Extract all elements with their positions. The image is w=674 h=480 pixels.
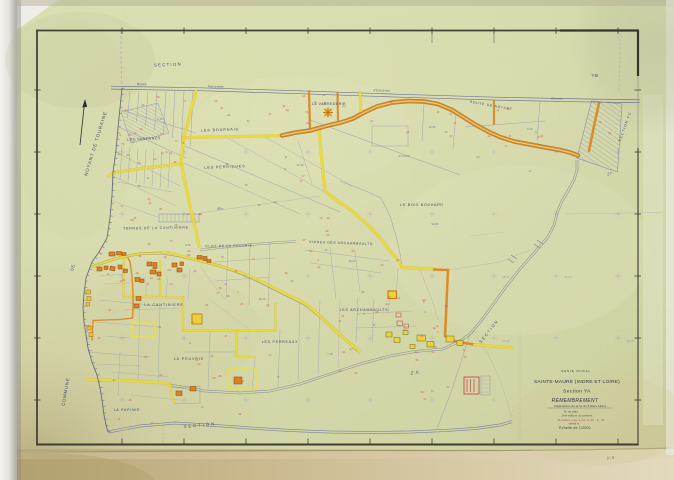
svg-text:16.20: 16.20 (259, 297, 266, 301)
svg-text:52.80: 52.80 (432, 222, 439, 226)
svg-text:N° du plan: N° du plan (564, 409, 578, 413)
svg-text:60: 60 (352, 249, 355, 253)
svg-text:Nationale: Nationale (208, 84, 224, 88)
svg-text:LA PEUVRIE: LA PEUVRIE (174, 357, 205, 361)
svg-text:Echelle de 1/2000: Echelle de 1/2000 (559, 426, 591, 430)
svg-text:25.00: 25.00 (565, 276, 572, 279)
svg-text:1ère édition du présent: 1ère édition du présent (561, 414, 592, 418)
svg-text:Chemin: Chemin (551, 96, 563, 100)
svg-text:LA PAPINIE: LA PAPINIE (114, 408, 141, 412)
svg-text:7.25: 7.25 (327, 352, 333, 356)
svg-text:18.40: 18.40 (349, 259, 356, 263)
svg-text:LES PERREAUX: LES PERREAUX (262, 340, 298, 344)
svg-text:LES ARCHAMBAULTS: LES ARCHAMBAULTS (340, 308, 389, 312)
svg-text:2è édition mise à jour le: 2è édition mise à jour le 30 - 6 - 65 (557, 418, 605, 422)
svg-text:8.35: 8.35 (185, 243, 191, 247)
svg-text:LA CANTINIERE: LA CANTINIERE (144, 303, 183, 307)
svg-text:9.42: 9.42 (527, 127, 533, 131)
svg-text:vérifié le: vérifié le (569, 422, 580, 425)
svg-text:SAINTE-MAURE (INDRE ET LOIR: SAINTE-MAURE (INDRE ET LOIRE) (534, 379, 620, 385)
svg-text:LA VARREDERIE: LA VARREDERIE (312, 102, 346, 106)
svg-text:30: 30 (244, 183, 248, 187)
svg-text:Section YA: Section YA (563, 389, 591, 394)
svg-text:25.00: 25.00 (503, 340, 510, 343)
svg-text:40: 40 (226, 162, 229, 166)
svg-text:YB: YB (591, 73, 598, 78)
svg-text:GENIE RURAL: GENIE RURAL (561, 369, 591, 373)
svg-text:24.10: 24.10 (297, 163, 304, 167)
svg-text:47.60.00: 47.60.00 (399, 154, 410, 158)
svg-text:SECTION: SECTION (154, 62, 182, 68)
svg-text:64: 64 (123, 278, 126, 282)
svg-text:Route: Route (137, 82, 147, 86)
svg-text:18: 18 (138, 161, 141, 165)
svg-text:12.55: 12.55 (429, 125, 436, 129)
svg-text:25.00: 25.00 (627, 340, 634, 343)
svg-text:d’Entretien: d’Entretien (373, 88, 390, 93)
svg-text:39: 39 (421, 390, 424, 394)
svg-text:6.15: 6.15 (157, 117, 163, 121)
svg-text:25.00: 25.00 (503, 276, 510, 279)
svg-text:CLOS DE LA PEUVRIE: CLOS DE LA PEUVRIE (205, 244, 252, 249)
svg-text:(Application de la loi du: (Application de la loi du 9 Mars 1941) (554, 404, 606, 408)
svg-text:11.30: 11.30 (217, 207, 224, 211)
svg-text:REMEMBREMENT: REMEMBREMENT (552, 398, 599, 404)
svg-text:LE BOIS BOUHARD: LE BOIS BOUHARD (400, 203, 443, 207)
svg-text:y.a: y.a (606, 455, 616, 462)
